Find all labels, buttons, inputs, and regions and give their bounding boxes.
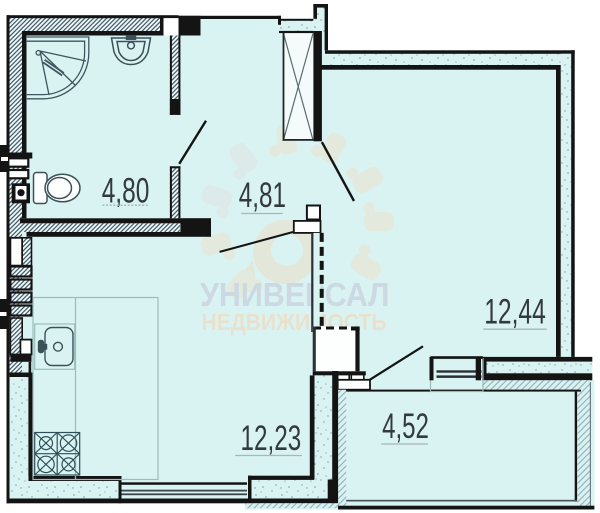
- svg-text:4,52: 4,52: [382, 406, 429, 446]
- svg-text:4,81: 4,81: [239, 175, 286, 215]
- svg-text:12,23: 12,23: [241, 418, 302, 458]
- svg-text:4,80: 4,80: [102, 171, 150, 211]
- svg-text:12,44: 12,44: [484, 291, 546, 331]
